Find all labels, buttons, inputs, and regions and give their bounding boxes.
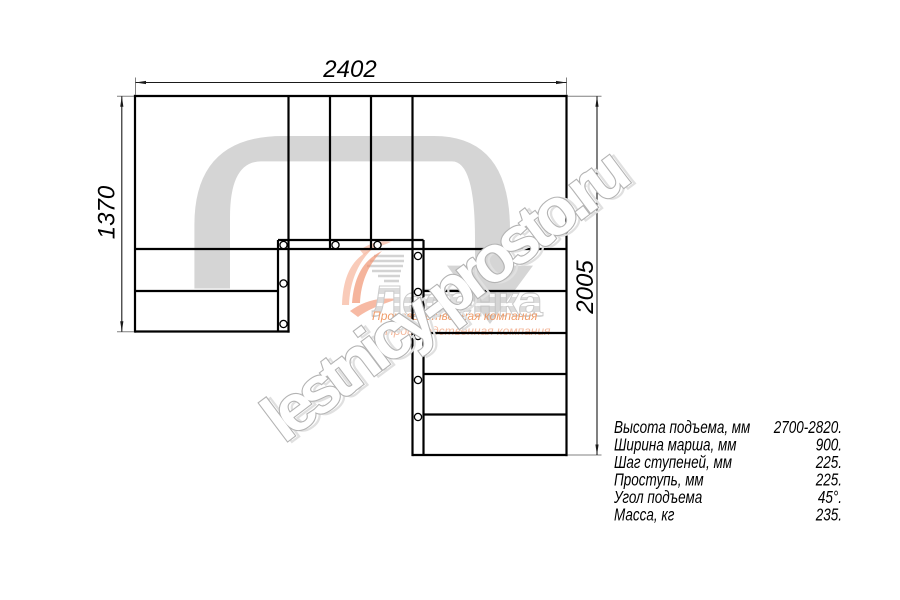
svg-text:Шаг ступеней, мм: Шаг ступеней, мм	[614, 453, 732, 472]
svg-text:Угол подъема: Угол подъема	[613, 488, 702, 507]
svg-text:Высота подъема, мм: Высота подъема, мм	[614, 418, 750, 437]
svg-text:2700-2820.: 2700-2820.	[773, 418, 842, 437]
svg-text:900.: 900.	[816, 436, 842, 455]
svg-text:235.: 235.	[815, 506, 842, 525]
svg-text:225.: 225.	[815, 471, 842, 490]
svg-text:Масса, кг: Масса, кг	[614, 506, 675, 525]
svg-text:Проступь, мм: Проступь, мм	[614, 471, 704, 490]
svg-text:45°.: 45°.	[818, 488, 842, 507]
svg-text:2402: 2402	[322, 56, 376, 83]
svg-text:1370: 1370	[94, 185, 121, 239]
svg-text:225.: 225.	[815, 453, 842, 472]
svg-text:2005: 2005	[572, 260, 599, 315]
svg-text:Ширина марша, мм: Ширина марша, мм	[614, 436, 737, 455]
